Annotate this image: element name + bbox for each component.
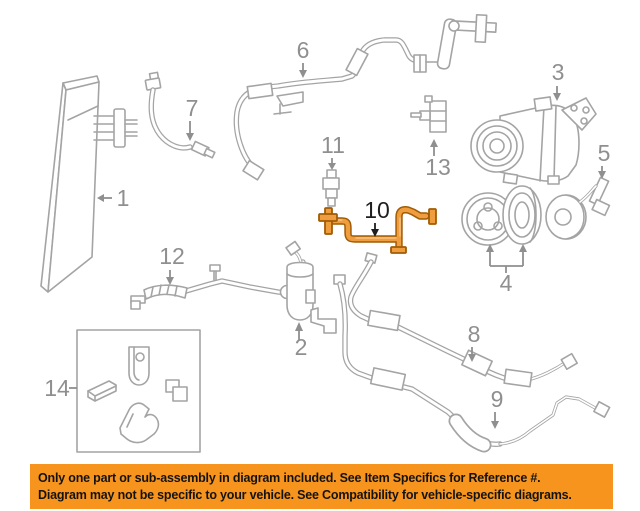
part-8-ac-line: 8	[350, 253, 577, 387]
part-11-valve: 11	[321, 132, 345, 206]
disclaimer-banner: Only one part or sub-assembly in diagram…	[30, 464, 613, 509]
part-label-11: 11	[321, 132, 345, 158]
part-label-8: 8	[468, 321, 481, 347]
part-label-1: 1	[117, 185, 130, 211]
part-6-hose-assembly: 6	[236, 15, 496, 180]
part-4-clutch-pulley-set: 4	[462, 186, 596, 296]
part-1-condenser: 1	[41, 76, 137, 292]
part-label-4: 4	[500, 270, 513, 296]
part-label-2: 2	[295, 334, 308, 360]
part-label-9: 9	[491, 386, 504, 412]
disclaimer-line-2: Diagram may not be specific to your vehi…	[38, 487, 613, 504]
part-label-3: 3	[552, 59, 565, 85]
part-7-hose: 7	[145, 72, 215, 157]
part-12-hose: 12	[131, 243, 303, 309]
part-5-bolt: 5	[589, 140, 610, 215]
part-label-7: 7	[186, 95, 199, 121]
part-label-10: 10	[364, 197, 390, 223]
part-14-hardware-kit: 14	[44, 330, 200, 452]
part-label-6: 6	[297, 37, 310, 63]
part-2-receiver-drier: 2	[286, 241, 336, 360]
part-label-5: 5	[598, 140, 611, 166]
part-10-highlighted-tube: 10	[319, 197, 436, 253]
part-3-compressor: 3	[471, 59, 596, 184]
part-label-14: 14	[44, 375, 70, 401]
diagram-canvas: 1 7 6 11	[0, 0, 640, 460]
part-label-12: 12	[159, 243, 185, 269]
part-13-bracket: 13	[411, 96, 451, 180]
part-label-13: 13	[425, 154, 451, 180]
disclaimer-line-1: Only one part or sub-assembly in diagram…	[38, 470, 613, 487]
